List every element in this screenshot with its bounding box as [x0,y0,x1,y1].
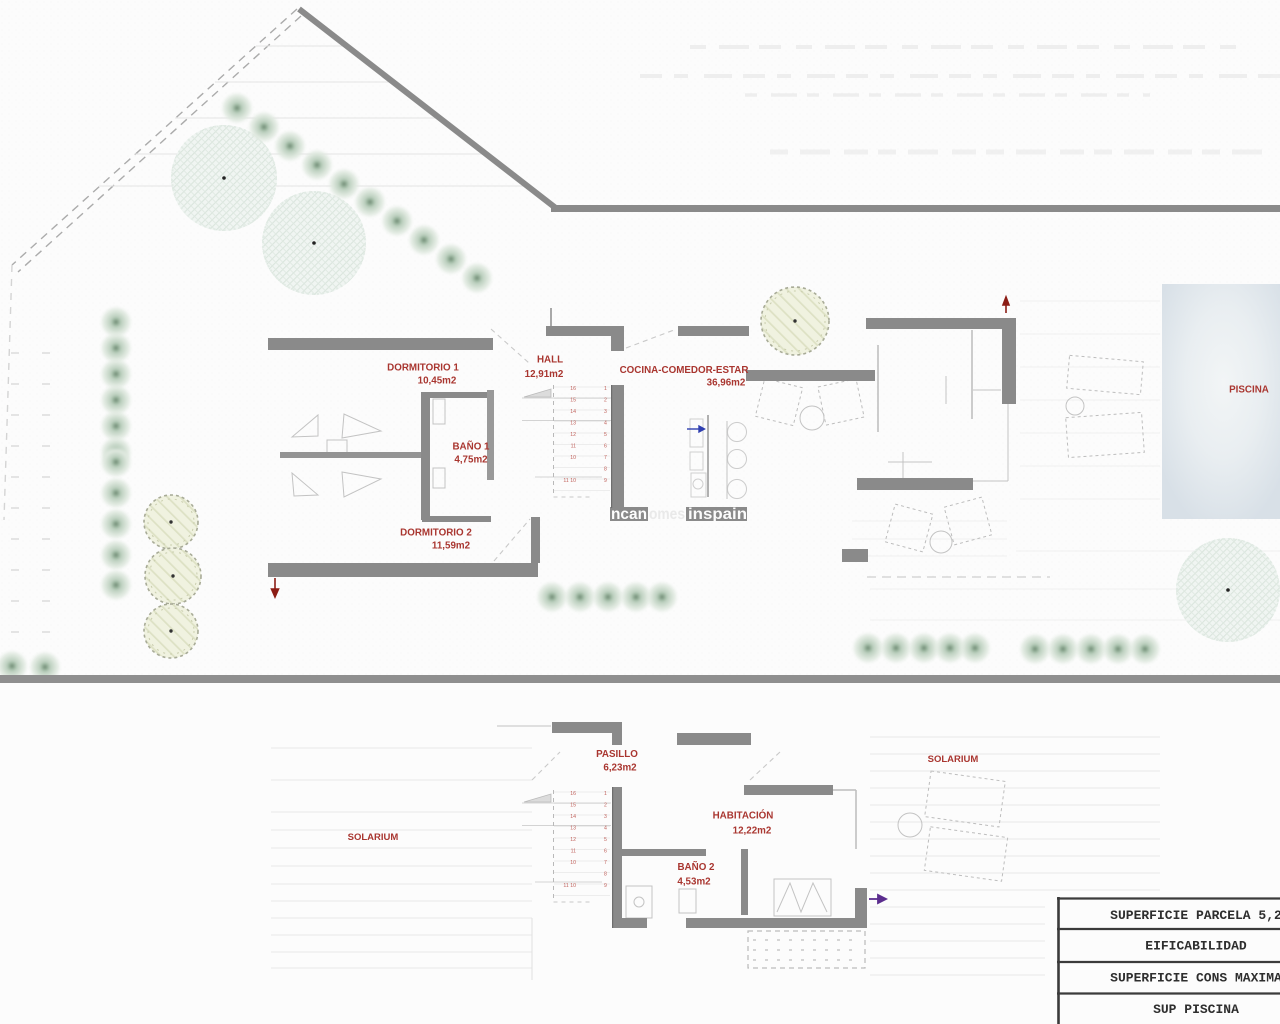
svg-text:16: 16 [570,791,576,797]
svg-text:10,45m2: 10,45m2 [418,376,457,387]
svg-text:12,22m2: 12,22m2 [733,826,772,837]
svg-text:BAÑO 1: BAÑO 1 [452,442,490,453]
svg-text:COCINA-COMEDOR-ESTAR: COCINA-COMEDOR-ESTAR [620,365,749,376]
svg-text:9: 9 [604,478,607,484]
svg-text:15: 15 [570,398,576,404]
svg-text:15: 15 [570,803,576,809]
svg-text:5: 5 [604,432,607,438]
svg-text:13: 13 [570,421,576,427]
svg-text:5: 5 [604,837,607,843]
svg-text:11 10: 11 10 [563,883,576,889]
svg-text:11: 11 [571,849,576,855]
svg-text:EIFICABILIDAD: EIFICABILIDAD [1145,939,1247,954]
svg-text:PASILLO: PASILLO [596,749,638,760]
svg-text:10: 10 [570,860,576,866]
svg-text:7: 7 [604,455,607,461]
svg-text:SUPERFICIE PARCELA 5,2: SUPERFICIE PARCELA 5,2 [1110,908,1280,923]
svg-text:HABITACIÓN: HABITACIÓN [713,810,774,822]
svg-text:10: 10 [570,455,576,461]
svg-text:8: 8 [604,872,607,878]
svg-text:6: 6 [604,849,607,855]
svg-text:11 10: 11 10 [563,478,576,484]
svg-text:DORMITORIO 2: DORMITORIO 2 [400,528,472,539]
svg-text:inspain: inspain [688,506,747,523]
svg-text:8: 8 [604,467,607,473]
svg-text:ncan: ncan [611,506,647,523]
svg-text:12,91m2: 12,91m2 [525,369,564,380]
svg-text:SOLARIUM: SOLARIUM [348,832,399,843]
svg-text:12: 12 [570,837,576,843]
svg-text:DORMITORIO 1: DORMITORIO 1 [387,363,459,374]
svg-text:2: 2 [604,398,607,404]
svg-text:14: 14 [570,409,576,415]
svg-text:4: 4 [604,826,607,832]
svg-text:14: 14 [570,814,576,820]
svg-text:16: 16 [570,386,576,392]
svg-text:6,23m2: 6,23m2 [603,763,637,774]
svg-text:BAÑO 2: BAÑO 2 [677,862,715,873]
svg-text:3: 3 [604,409,607,415]
svg-text:HALL: HALL [537,355,563,366]
svg-text:SOLARIUM: SOLARIUM [928,754,979,765]
svg-text:omes: omes [649,506,685,523]
svg-text:PISCINA: PISCINA [1229,385,1269,396]
svg-text:1: 1 [604,386,607,392]
svg-text:9: 9 [604,883,607,889]
svg-text:12: 12 [570,432,576,438]
svg-text:2: 2 [604,803,607,809]
svg-text:SUP PISCINA: SUP PISCINA [1153,1002,1239,1017]
svg-text:11,59m2: 11,59m2 [432,541,471,552]
svg-text:4,53m2: 4,53m2 [677,877,711,888]
svg-text:13: 13 [570,826,576,832]
svg-text:1: 1 [604,791,607,797]
svg-text:7: 7 [604,860,607,866]
svg-text:6: 6 [604,444,607,450]
svg-text:4,75m2: 4,75m2 [454,455,488,466]
svg-text:3: 3 [604,814,607,820]
svg-text:4: 4 [604,421,607,427]
svg-text:11: 11 [571,444,576,450]
svg-text:36,96m2: 36,96m2 [707,378,746,389]
svg-text:SUPERFICIE CONS MAXIMA: SUPERFICIE CONS MAXIMA [1110,971,1280,986]
